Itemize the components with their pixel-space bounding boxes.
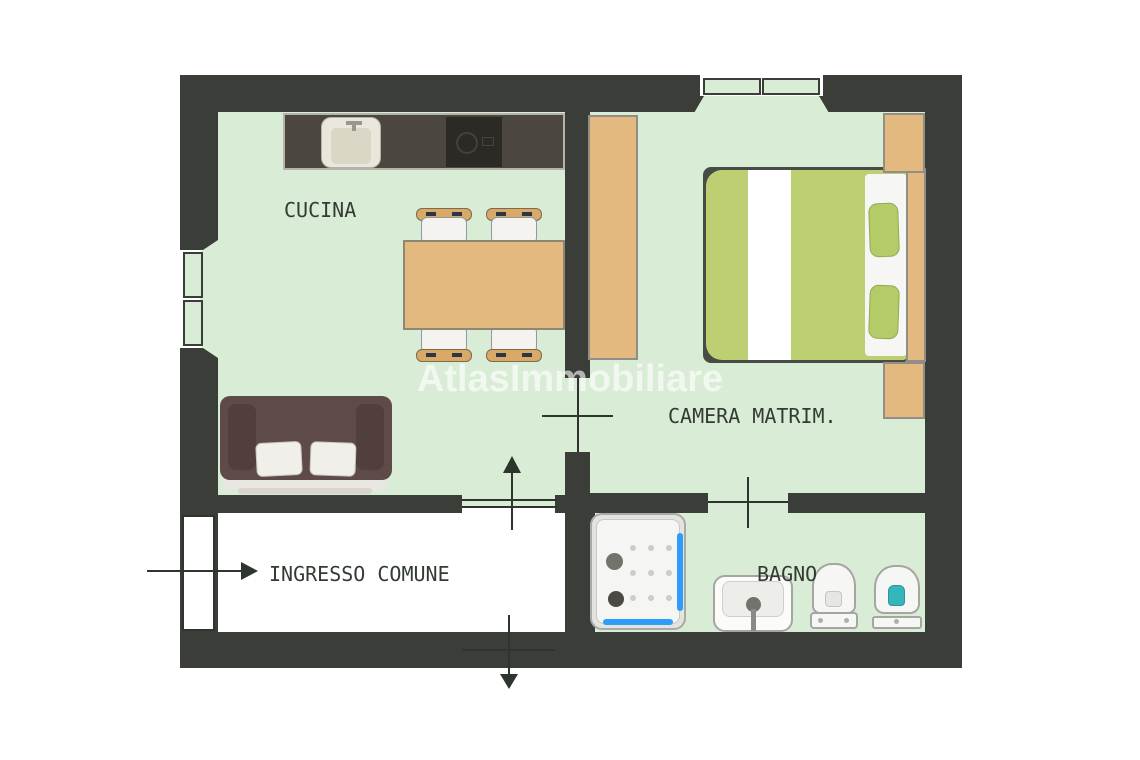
sink — [321, 117, 381, 168]
cooktop — [446, 117, 502, 167]
chair — [486, 208, 542, 244]
dining-table — [403, 240, 565, 330]
shower-glass — [677, 533, 683, 611]
chair — [416, 326, 472, 362]
shower-glass — [603, 619, 673, 625]
kitchen-counter — [283, 113, 565, 170]
entry-arrowhead-right — [241, 562, 258, 580]
sink-basin — [331, 128, 371, 164]
window-top-splay — [694, 96, 829, 113]
exterior-wall-right — [925, 75, 962, 668]
entry-arrow — [147, 570, 243, 572]
nightstand — [883, 362, 925, 419]
double-bed — [703, 165, 926, 365]
entry-door-recess — [182, 515, 215, 631]
kitchen-door-arrow — [511, 464, 513, 530]
nightstand — [883, 113, 925, 173]
sofa-pillow — [255, 441, 303, 477]
window-top-pane — [762, 78, 820, 95]
shower — [590, 513, 686, 630]
chair — [486, 326, 542, 362]
sofa-arm — [228, 404, 256, 470]
floor-plan: CUCINA CAMERA MATRIM. INGRESSO COMUNE BA… — [0, 0, 1140, 760]
window-top-pane — [703, 78, 761, 95]
exit-door-arrowhead-down — [500, 674, 518, 689]
sofa-arm — [356, 404, 384, 470]
bedroom-door-symbol — [542, 415, 613, 417]
sofa — [220, 396, 392, 495]
sink-faucet — [352, 122, 356, 131]
shower-drain — [608, 591, 624, 607]
sofa-pillow — [309, 441, 356, 477]
sofa-base — [238, 488, 372, 494]
bed-pillow — [868, 202, 900, 257]
cooktop-burner — [456, 132, 478, 154]
wardrobe — [588, 115, 638, 360]
watermark: AtlasImmobiliare — [417, 358, 723, 401]
window-left-pane — [183, 252, 203, 298]
label-ingresso-comune: INGRESSO COMUNE — [269, 562, 450, 586]
kitchen-door-threshold — [462, 506, 557, 508]
chair — [416, 208, 472, 244]
kitchen-door-threshold — [462, 499, 557, 501]
bed-runner — [748, 170, 791, 360]
exit-door-arrow — [508, 615, 510, 676]
label-cucina: CUCINA — [284, 198, 356, 222]
shower-head — [606, 553, 623, 570]
label-bagno: BAGNO — [757, 562, 817, 586]
window-left-pane — [183, 300, 203, 346]
toilet — [872, 565, 922, 629]
exterior-wall-top — [180, 75, 962, 112]
toilet-bowl — [888, 585, 905, 606]
washbasin-faucet — [751, 609, 756, 631]
wall-kitchen-bedroom-upper — [565, 112, 590, 378]
label-camera-matrimoniale: CAMERA MATRIM. — [668, 404, 837, 428]
kitchen-door-arrowhead-up — [503, 456, 521, 473]
bed-headboard — [906, 168, 926, 362]
wall-bedroom-bathroom-left — [590, 493, 708, 513]
cooktop-control — [482, 137, 494, 146]
bathroom-door-symbol — [747, 477, 749, 528]
bed-pillow — [868, 284, 900, 339]
wall-corridor-top — [180, 495, 462, 513]
wall-bedroom-bathroom-right — [788, 493, 925, 513]
